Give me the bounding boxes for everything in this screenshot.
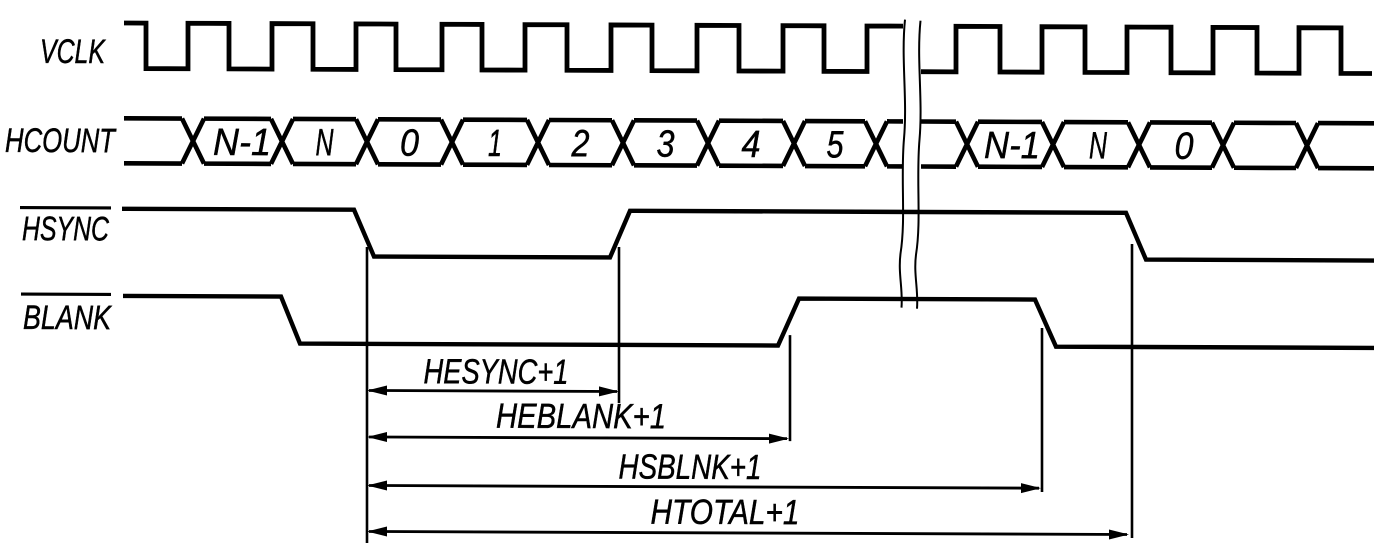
svg-text:VCLK: VCLK xyxy=(40,33,106,71)
svg-text:1: 1 xyxy=(488,123,502,165)
svg-text:HEBLANK+1: HEBLANK+1 xyxy=(496,397,666,437)
svg-text:5: 5 xyxy=(826,124,844,166)
svg-text:N: N xyxy=(1089,125,1107,167)
svg-text:4: 4 xyxy=(742,124,761,166)
svg-text:N-1: N-1 xyxy=(213,122,271,164)
svg-text:0: 0 xyxy=(400,123,419,165)
svg-text:N: N xyxy=(316,122,334,164)
svg-text:HSYNC: HSYNC xyxy=(22,210,109,248)
svg-text:HSBLNK+1: HSBLNK+1 xyxy=(619,447,762,487)
svg-text:2: 2 xyxy=(571,123,590,165)
svg-text:HTOTAL+1: HTOTAL+1 xyxy=(651,493,800,533)
svg-text:BLANK: BLANK xyxy=(23,299,112,337)
svg-text:3: 3 xyxy=(657,124,675,166)
svg-text:0: 0 xyxy=(1174,126,1193,168)
svg-text:N-1: N-1 xyxy=(984,125,1040,167)
svg-text:HESYNC+1: HESYNC+1 xyxy=(424,352,569,392)
svg-text:HCOUNT: HCOUNT xyxy=(5,122,117,160)
